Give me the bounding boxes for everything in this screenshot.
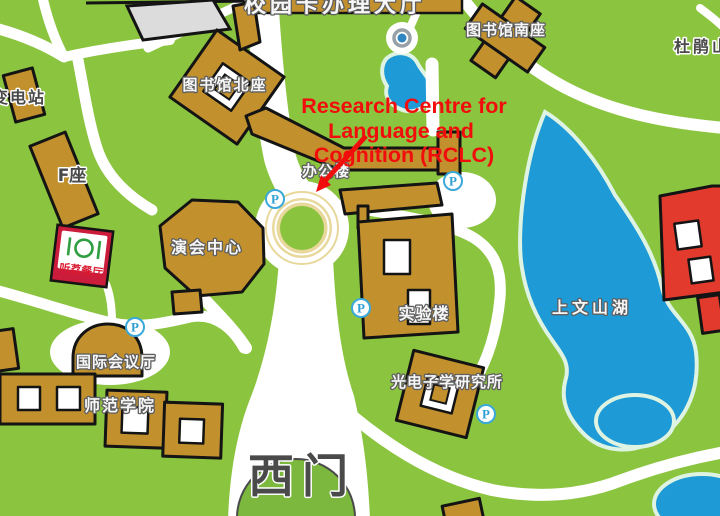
- label-f-block: F座: [58, 165, 87, 186]
- parking-icon: P: [477, 405, 495, 423]
- fountain-center: [398, 34, 407, 43]
- parking-icon: P: [444, 172, 462, 190]
- label-optoelectronics: 光电子学研究所: [390, 373, 503, 391]
- label-conference-hall: 国际会议厅: [76, 353, 156, 371]
- parking-letter: P: [131, 320, 139, 335]
- label-library-south: 图书馆南座: [466, 21, 546, 39]
- label-azalea-hill: 杜鹃山: [674, 37, 720, 56]
- label-west-gate: 西门: [248, 449, 356, 503]
- performance-center-annex: [172, 290, 202, 314]
- label-normal-college: 师范学院: [84, 396, 156, 415]
- label-substation: 变电站: [0, 88, 46, 107]
- campus-map: 听荔餐厅 P P P P P 校园卡办理大厅 图书馆北座 图书馆南座 杜鹃山 变…: [0, 0, 720, 516]
- normal-college-courtyard-1: [18, 387, 40, 410]
- parking-icon: P: [266, 190, 284, 208]
- annotation-line-2: Language and: [328, 119, 474, 143]
- red-building-courtyard-1: [674, 220, 701, 249]
- restaurant-icon: 听荔餐厅: [51, 225, 113, 287]
- normal-college-courtyard-2: [57, 387, 80, 410]
- south-pond: [596, 395, 674, 447]
- roundabout-center: [280, 206, 324, 250]
- campus-map-canvas: 听荔餐厅 P P P P P 校园卡办理大厅 图书馆北座 图书馆南座 杜鹃山 变…: [0, 0, 720, 516]
- fountain: [386, 22, 418, 54]
- annotation-line-3: Cognition (RCLC): [314, 143, 494, 167]
- parking-icon: P: [352, 299, 370, 317]
- label-campus-card-hall: 校园卡办理大厅: [244, 0, 426, 18]
- optoelectronics-building: [396, 350, 483, 437]
- red-building-courtyard-2: [688, 257, 713, 284]
- label-library-north: 图书馆北座: [182, 76, 267, 94]
- normal-college-east-2-courtyard: [179, 419, 204, 444]
- red-building-east-annex: [698, 295, 720, 334]
- annotation-line-1: Research Centre for: [301, 94, 507, 118]
- parking-icon: P: [126, 318, 144, 336]
- lab-courtyard-1: [384, 240, 410, 274]
- label-lake: 上文山湖: [552, 298, 632, 317]
- label-performance-center: 演会中心: [171, 238, 243, 257]
- parking-letter: P: [449, 174, 457, 189]
- parking-letter: P: [271, 192, 279, 207]
- parking-letter: P: [357, 301, 365, 316]
- parking-letter: P: [482, 407, 490, 422]
- label-laboratory: 实验楼: [398, 304, 449, 323]
